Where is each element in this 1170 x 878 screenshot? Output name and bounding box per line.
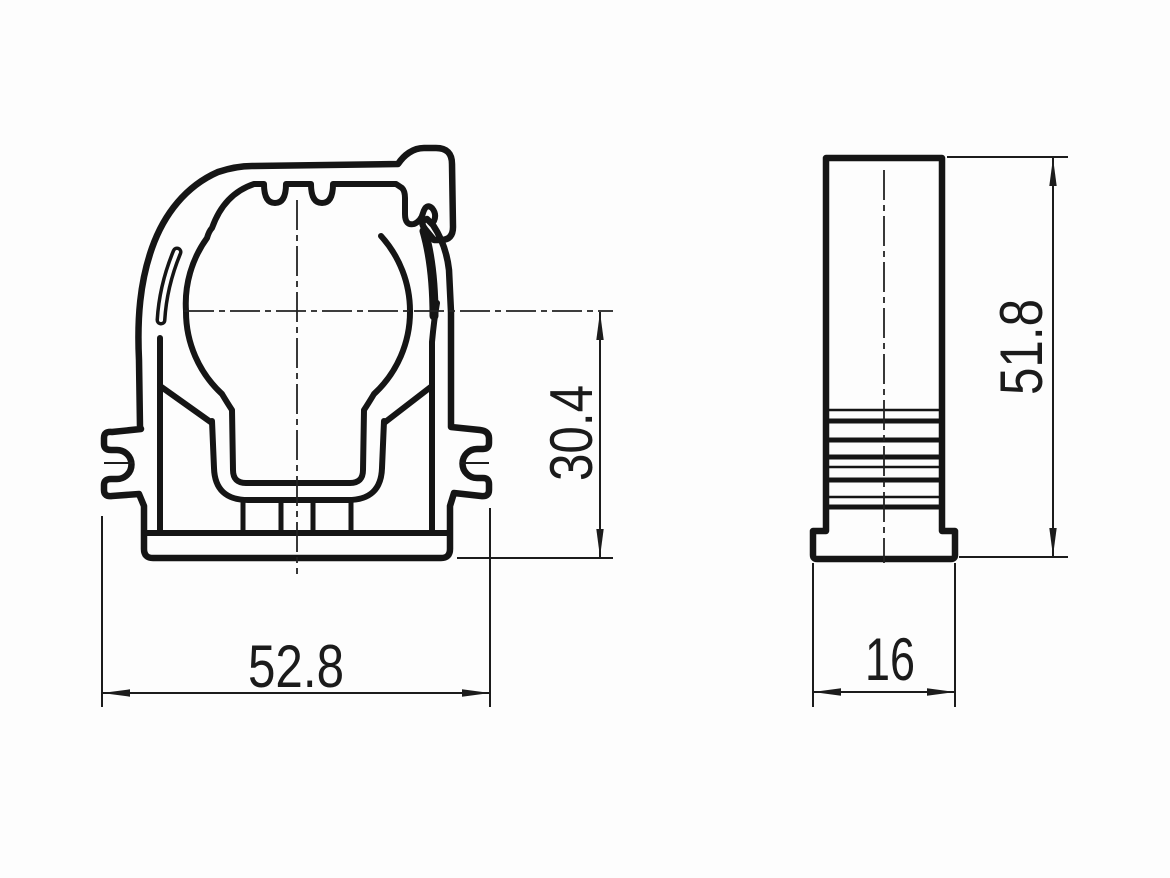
front-seat-height-dimension: 30.4	[457, 312, 613, 558]
side-depth-dimension: 16	[813, 563, 955, 707]
front-web-right	[384, 386, 432, 423]
technical-drawing: 52.8 30.4 51.8	[0, 0, 1170, 878]
side-height-dimension: 51.8	[947, 157, 1068, 557]
arrowhead-left	[102, 689, 130, 696]
front-bore-profile	[186, 184, 435, 483]
arrowhead-top	[1049, 158, 1056, 186]
front-view	[104, 148, 613, 574]
front-seat-height-value: 30.4	[538, 385, 605, 481]
arrowhead-bottom	[1049, 528, 1056, 556]
side-height-value: 51.8	[988, 299, 1055, 395]
front-cup-outer	[212, 421, 384, 500]
front-inner-wall-right	[432, 303, 437, 533]
side-view	[813, 158, 955, 563]
arrowhead-left	[813, 688, 841, 695]
arrowhead-bottom	[596, 529, 603, 557]
side-depth-value: 16	[865, 626, 915, 693]
front-width-value: 52.8	[248, 633, 344, 700]
arrowhead-right	[927, 688, 955, 695]
arrowhead-top	[596, 312, 603, 340]
front-web-left	[160, 386, 212, 423]
arrowhead-right	[462, 689, 490, 696]
front-latch-slot	[424, 231, 434, 316]
drawing-canvas: 52.8 30.4 51.8	[0, 0, 1170, 878]
front-width-dimension: 52.8	[102, 508, 490, 707]
